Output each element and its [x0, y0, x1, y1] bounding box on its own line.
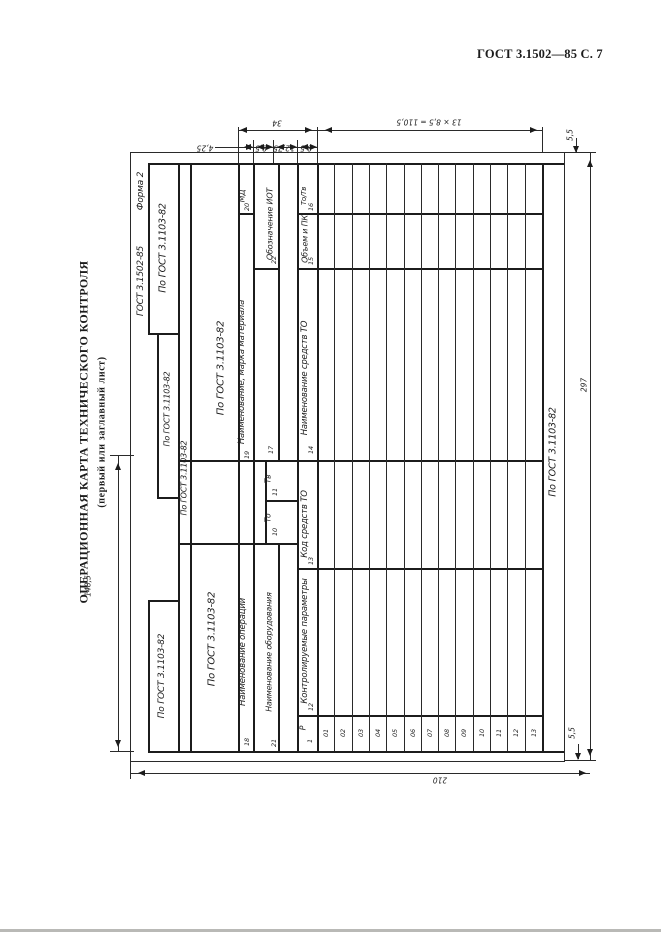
form-frame-line — [297, 163, 299, 752]
form-frame-line — [148, 163, 150, 334]
row-number: 06 — [409, 729, 417, 737]
cell-13-label: Код средств ТО — [300, 490, 310, 557]
grid-column-line — [507, 163, 508, 751]
grid-column-line — [438, 163, 439, 751]
dim-4-25: 4,25 — [197, 144, 214, 153]
form-frame-line — [148, 751, 564, 753]
cell-20-num: 20 — [243, 203, 251, 211]
form-frame-line — [278, 543, 280, 752]
grid-column-line — [455, 163, 456, 751]
row-number: 12 — [512, 729, 520, 737]
cell-12-num: 12 — [307, 703, 315, 711]
row-number: 13 — [530, 729, 538, 737]
form-frame-line — [253, 268, 278, 270]
row-number: 01 — [322, 729, 330, 737]
form-frame-line — [148, 600, 150, 752]
form-frame-line — [178, 543, 297, 545]
dimension-arrow — [575, 753, 581, 763]
gost-ref-block-1: По ГОСТ 3.1103-82 — [158, 203, 169, 293]
gost-ref-footer-strip: По ГОСТ 3.1103-82 — [548, 407, 559, 497]
dim-width-210: 210 — [433, 776, 447, 785]
dimension-line — [110, 751, 134, 752]
cell-21-label: Наименование оборудования — [265, 592, 274, 712]
row-col-num: 1 — [306, 739, 314, 743]
dim-34: 34 — [272, 119, 282, 128]
dim-grid-110-5: 13 × 8,5 = 110,5 — [396, 118, 461, 127]
form-designation: ГОСТ 3.1502-85 — [136, 246, 146, 316]
dim-margin-bottom-5-5: 5,5 — [568, 727, 577, 739]
grid-column-line — [386, 163, 387, 751]
dimension-arrow — [305, 127, 315, 133]
dimension-line — [130, 773, 590, 774]
cell-14-num: 14 — [307, 446, 315, 454]
dimension-arrow — [587, 749, 593, 759]
dimension-arrow — [115, 460, 121, 470]
row-number: 11 — [495, 729, 503, 737]
grid-column-line — [352, 163, 353, 751]
grid-column-line — [525, 163, 526, 751]
gost-ref-block-5: По ГОСТ 3.1103-82 — [216, 321, 227, 415]
doc-title: ОПЕРАЦИОННАЯ КАРТА ТЕХНИЧЕСКОГО КОНТРОЛЯ — [77, 261, 92, 604]
dimension-arrow — [237, 127, 247, 133]
scanned-page: ГОСТ 3.1502—85 С. 7 ОПЕРАЦИОННАЯ КАРТА Т… — [0, 0, 661, 936]
dimension-arrow — [587, 157, 593, 167]
dimension-line — [590, 152, 591, 760]
row-number: 10 — [478, 729, 486, 737]
page-header: ГОСТ 3.1502—85 С. 7 — [477, 47, 603, 62]
dimension-line — [110, 455, 134, 456]
row-number: 09 — [460, 729, 468, 737]
cell-18-num: 18 — [243, 738, 251, 746]
gost-ref-block-2: По ГОСТ 3.1103-82 — [163, 372, 172, 447]
dimension-line — [130, 760, 131, 779]
dimension-line — [118, 455, 119, 751]
form-frame-line — [157, 497, 178, 499]
form-frame-line — [238, 163, 240, 752]
dim-height-297: 297 — [580, 378, 589, 392]
row-number: 03 — [357, 729, 365, 737]
cell-22-label: Обозначение ИОТ — [266, 188, 275, 260]
row-number: 05 — [391, 729, 399, 737]
dimension-line — [542, 127, 543, 152]
cell-14-label: Наименование средств ТО — [300, 321, 310, 436]
cell-15-label: Объем и ПК — [301, 215, 310, 263]
grid-column-line — [369, 163, 370, 751]
cell-21-num: 21 — [270, 739, 278, 747]
cell-10-num: 10 — [271, 528, 279, 536]
grid-column-line — [473, 163, 474, 751]
row-number: 04 — [374, 729, 382, 737]
form-frame-line — [238, 213, 253, 215]
form-frame-line — [265, 462, 267, 543]
dimension-arrow — [573, 146, 579, 156]
grid-column-line — [421, 163, 422, 751]
dim-margin-top-5-5: 5,5 — [566, 129, 575, 141]
form-number: Форма 2 — [136, 172, 146, 210]
form-frame-line — [178, 163, 180, 752]
row-number: 02 — [339, 729, 347, 737]
form-frame-line — [148, 163, 564, 165]
form-frame-line — [148, 600, 178, 602]
dimension-arrow — [115, 740, 121, 750]
dimension-arrow — [254, 144, 264, 150]
cell-13-num: 13 — [307, 557, 315, 565]
form-frame-line — [253, 163, 255, 752]
gost-ref-block-4: По ГОСТ 3.1103-82 — [157, 634, 167, 719]
gost-ref-block-6: По ГОСТ 3.1103-82 — [207, 592, 218, 686]
dimension-arrow — [322, 127, 332, 133]
dim-half-148-5: 148,5 — [84, 575, 93, 596]
dimension-line — [215, 147, 238, 148]
dimension-arrow — [274, 144, 284, 150]
form-sheet-outline — [130, 152, 565, 762]
dimension-line — [564, 152, 596, 153]
grid-column-line — [334, 163, 335, 751]
form-frame-line — [178, 460, 542, 462]
dimension-line — [317, 130, 542, 131]
grid-column-line — [404, 163, 405, 751]
cell-11-num: 11 — [271, 488, 279, 496]
gost-ref-block-3: По ГОСТ 3.1103-82 — [180, 441, 189, 516]
cell-12-label: Контролируемые параметры — [300, 578, 310, 703]
row-col-header: Р — [299, 726, 308, 731]
grid-column-line — [490, 163, 491, 751]
form-frame-line — [265, 500, 297, 502]
row-number: 07 — [426, 729, 434, 737]
form-frame-line — [190, 163, 192, 752]
scan-edge-shadow — [0, 929, 661, 932]
dimension-arrow — [135, 770, 145, 776]
form-frame-line — [542, 163, 544, 752]
row-number: 08 — [443, 729, 451, 737]
cell-15-num: 15 — [307, 257, 315, 265]
form-frame-line — [317, 163, 319, 752]
cell-16-num: 16 — [307, 203, 315, 211]
cell-22-num: 22 — [270, 256, 278, 264]
form-frame-line — [157, 333, 159, 498]
dimension-arrow — [310, 144, 320, 150]
cell-17-num: 17 — [267, 446, 275, 454]
cell-19-num: 19 — [243, 451, 251, 459]
doc-subtitle: (первый или заглавный лист) — [97, 356, 108, 507]
form-frame-line — [148, 333, 178, 335]
form-frame-line — [278, 163, 280, 462]
dimension-arrow — [298, 144, 308, 150]
dimension-arrow — [579, 770, 589, 776]
dimension-arrow — [530, 127, 540, 133]
